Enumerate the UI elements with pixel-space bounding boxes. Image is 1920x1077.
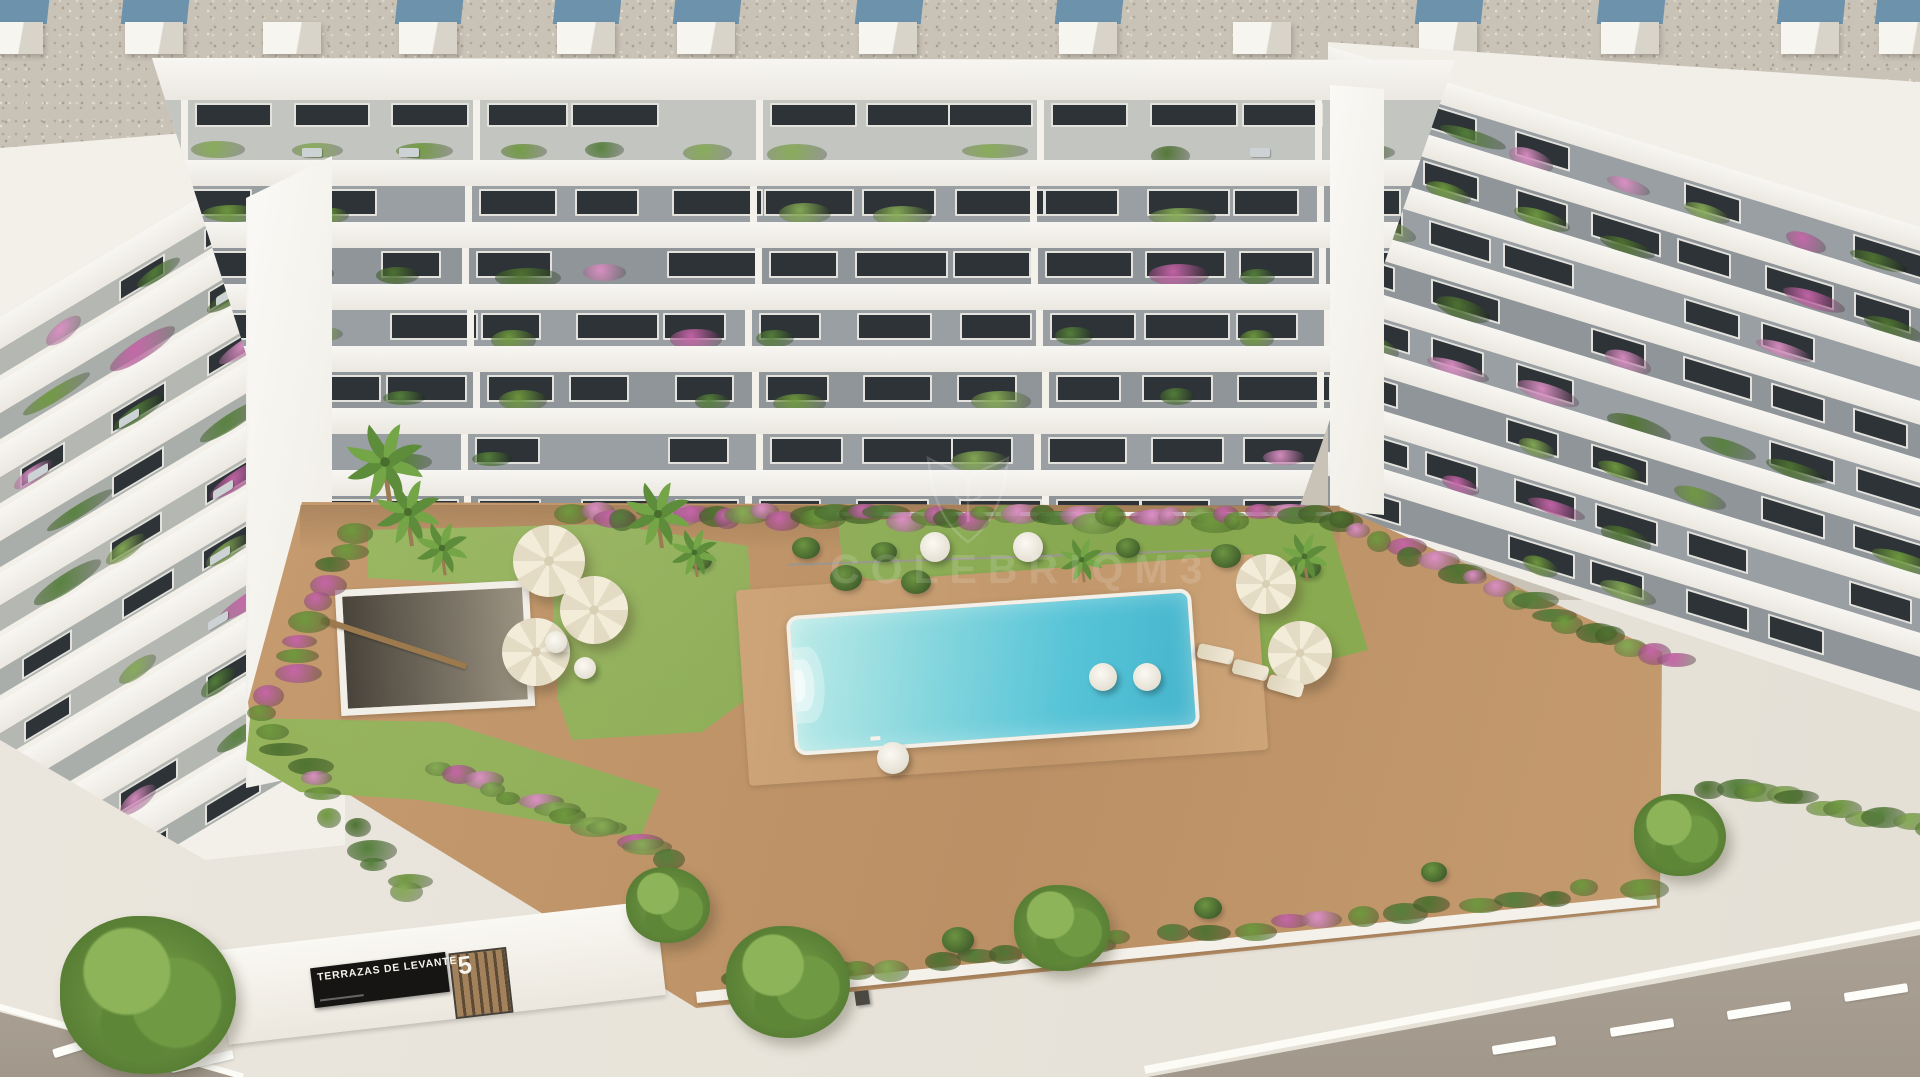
- window: [863, 375, 933, 402]
- roof-vent-body: [1059, 22, 1117, 54]
- pool-ladder: [870, 736, 880, 741]
- roof-vent-blue-top: [1415, 0, 1484, 24]
- roof-vent-body: [677, 22, 735, 54]
- window: [571, 103, 659, 127]
- roof-vent: [674, 0, 740, 56]
- bay-divider: [756, 434, 763, 470]
- day-bed: [877, 742, 909, 774]
- terrace-furniture: [208, 610, 228, 631]
- roof-parapet: [140, 58, 1480, 100]
- balcony-plant: [583, 264, 626, 281]
- roof-vent: [1230, 0, 1296, 56]
- flower-hedge: [1620, 879, 1669, 900]
- roof-vent-blue-top: [121, 0, 190, 24]
- street-tree: [726, 926, 850, 1038]
- bay-divider: [1319, 248, 1326, 284]
- flower-hedge: [1224, 512, 1249, 529]
- roof-vent-body: [0, 22, 43, 54]
- day-bed: [1089, 663, 1117, 691]
- window: [576, 313, 659, 340]
- roof-vent-blue-top: [1055, 0, 1124, 24]
- window: [575, 189, 638, 216]
- day-bed: [545, 631, 567, 653]
- flower-hedge: [1512, 592, 1559, 610]
- flower-hedge: [247, 705, 276, 722]
- window: [569, 375, 628, 402]
- window: [1150, 103, 1238, 127]
- roof-vent: [0, 0, 48, 56]
- bay-divider: [1030, 186, 1037, 222]
- flower-hedge: [360, 858, 387, 871]
- window: [294, 103, 370, 127]
- roof-vent-blue-top: [673, 0, 742, 24]
- street-tree: [1634, 794, 1726, 877]
- bay-divider: [1317, 372, 1324, 408]
- watermark: COLEBRIQM3: [830, 450, 1170, 610]
- balcony-plant: [376, 267, 419, 284]
- roof-vent: [260, 0, 326, 56]
- flower-hedge: [275, 664, 322, 683]
- facade-recess: [140, 186, 1480, 222]
- bay-divider: [1036, 310, 1043, 346]
- scene-aerial-render: TERRAZAS DE LEVANTE 5 COLEBRIQM3: [0, 0, 1920, 1077]
- flower-hedge: [586, 821, 627, 835]
- window: [953, 251, 1031, 278]
- balcony-plant: [1263, 450, 1306, 464]
- terrace-furniture: [302, 148, 322, 157]
- roof-vent-body: [399, 22, 457, 54]
- roof-vent-body: [1233, 22, 1291, 54]
- bay-divider: [756, 100, 763, 160]
- window: [1051, 103, 1128, 127]
- bay-divider: [467, 310, 474, 346]
- balcony-plant: [585, 142, 624, 158]
- flower-hedge: [288, 611, 330, 633]
- bay-divider: [745, 310, 752, 346]
- window: [1044, 189, 1119, 216]
- street-tree: [60, 916, 236, 1074]
- roof-vent-blue-top: [395, 0, 464, 24]
- flower-hedge: [253, 685, 284, 707]
- terrace-furniture: [399, 148, 419, 157]
- roof-vent-body: [125, 22, 183, 54]
- day-bed: [1133, 663, 1161, 691]
- balcony-parapet: [140, 346, 1480, 372]
- facade-recess: [140, 310, 1480, 346]
- roof-vent: [1598, 0, 1664, 56]
- flower-hedge: [1157, 924, 1189, 940]
- terrace-furniture: [1250, 148, 1270, 157]
- roof-vent: [122, 0, 188, 56]
- parasol: [1236, 554, 1296, 614]
- facade-recess: [140, 248, 1480, 284]
- palm-tree-icon: [406, 512, 478, 584]
- roof-vent-blue-top: [0, 0, 49, 24]
- bay-divider: [1031, 248, 1038, 284]
- bush: [1211, 544, 1241, 568]
- street-tree: [626, 867, 710, 943]
- window: [667, 251, 758, 278]
- window: [479, 189, 557, 216]
- window: [672, 189, 763, 216]
- roof-vent: [1778, 0, 1844, 56]
- bush: [1194, 897, 1222, 919]
- roof-vent: [1876, 0, 1920, 56]
- flower-hedge: [1188, 925, 1231, 942]
- bush: [942, 927, 974, 953]
- roof-vent-body: [1601, 22, 1659, 54]
- roof-vent-blue-top: [1777, 0, 1846, 24]
- window: [855, 251, 948, 278]
- balcony-plant: [1055, 327, 1093, 345]
- roof-vent: [554, 0, 620, 56]
- balcony-plant: [962, 144, 1029, 158]
- roof-vent-blue-top: [1875, 0, 1920, 24]
- balcony-plant: [501, 144, 547, 159]
- roof-vent-body: [1879, 22, 1920, 54]
- bay-divider: [181, 100, 188, 160]
- roof-vent-body: [859, 22, 917, 54]
- balcony-plant: [756, 330, 793, 347]
- roof-vent: [1056, 0, 1122, 56]
- balcony-plant: [472, 452, 512, 467]
- roof-vent-body: [263, 22, 321, 54]
- window: [487, 103, 568, 127]
- sign-number: 5: [456, 953, 473, 980]
- bay-divider: [473, 100, 480, 160]
- window: [1056, 375, 1121, 402]
- balcony-plant: [191, 141, 245, 158]
- flower-hedge: [1570, 879, 1598, 896]
- street-tree: [1014, 885, 1110, 971]
- balcony-plant: [1160, 388, 1194, 405]
- flower-hedge: [989, 945, 1022, 963]
- roof-vent-body: [1781, 22, 1839, 54]
- balcony-plant: [1240, 269, 1276, 286]
- bay-divider: [1317, 186, 1324, 222]
- flower-hedge: [301, 771, 331, 784]
- roof-vent: [396, 0, 462, 56]
- bay-divider: [461, 434, 468, 470]
- flower-hedge: [925, 952, 961, 970]
- watermark-emblem-icon: [918, 450, 1018, 550]
- window: [960, 313, 1032, 340]
- window: [195, 103, 272, 127]
- flower-hedge: [1494, 892, 1542, 908]
- flower-hedge: [345, 818, 370, 837]
- palm-tree-icon: [662, 520, 727, 585]
- balcony-parapet: [140, 160, 1480, 186]
- balcony-parapet: [140, 284, 1480, 310]
- window: [1144, 313, 1230, 340]
- flower-hedge: [315, 557, 349, 572]
- window: [770, 103, 857, 127]
- bay-divider: [1315, 100, 1322, 160]
- facade-recess: [140, 100, 1480, 160]
- roof-vent-blue-top: [553, 0, 622, 24]
- bay-divider: [462, 248, 469, 284]
- watermark-text: COLEBRIQM3: [830, 546, 1213, 593]
- window: [857, 313, 932, 340]
- parasol: [560, 576, 628, 644]
- flower-hedge: [1657, 653, 1696, 667]
- window: [668, 437, 730, 464]
- flower-hedge: [276, 649, 319, 663]
- window: [390, 313, 479, 340]
- bay-divider: [752, 372, 759, 408]
- balcony-plant: [1149, 264, 1209, 285]
- balcony-plant: [383, 391, 425, 405]
- bay-divider: [473, 372, 480, 408]
- balcony-parapet: [140, 222, 1480, 248]
- roof-vent: [1416, 0, 1482, 56]
- bay-divider: [755, 248, 762, 284]
- flower-hedge: [872, 960, 910, 981]
- flower-hedge: [1540, 891, 1571, 907]
- right-wing-corner-wall: [1322, 75, 1392, 520]
- window: [391, 103, 469, 127]
- bay-divider: [1037, 100, 1044, 160]
- bay-divider: [1042, 372, 1049, 408]
- day-bed: [574, 657, 596, 679]
- window: [1233, 189, 1298, 216]
- window: [769, 251, 838, 278]
- window: [1045, 251, 1133, 278]
- window: [948, 103, 1033, 127]
- facade-recess: [140, 372, 1480, 408]
- roof-vent-blue-top: [1597, 0, 1666, 24]
- window: [1242, 103, 1323, 127]
- roof-vent-body: [557, 22, 615, 54]
- roof-vent: [856, 0, 922, 56]
- bay-divider: [750, 186, 757, 222]
- bush: [792, 537, 820, 559]
- bay-divider: [465, 186, 472, 222]
- flower-hedge: [256, 724, 289, 740]
- roof-vent-blue-top: [855, 0, 924, 24]
